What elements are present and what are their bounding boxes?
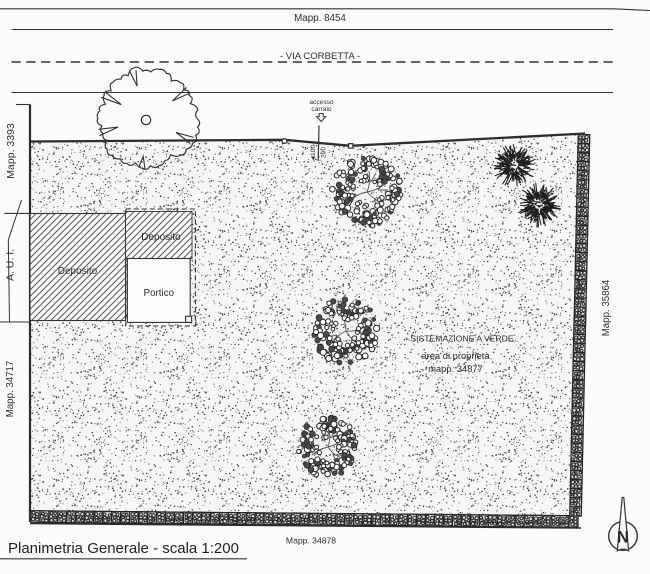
svg-text:carraio: carraio — [311, 106, 331, 113]
svg-text:Deposito: Deposito — [141, 232, 181, 243]
svg-text:Portico: Portico — [144, 288, 175, 299]
svg-text:200: 200 — [321, 147, 328, 158]
svg-text:SISTEMAZIONE A VERDE: SISTEMAZIONE A VERDE — [410, 334, 513, 344]
svg-text:Mapp. 34878: Mapp. 34878 — [286, 536, 336, 546]
svg-text:area di proprietà: area di proprietà — [421, 350, 490, 361]
svg-text:Planimetria Generale - scala 1: Planimetria Generale - scala 1:200 — [8, 540, 239, 557]
svg-text:Deposito: Deposito — [58, 266, 98, 277]
svg-text:N: N — [617, 529, 629, 547]
svg-text:A. U. I.: A. U. I. — [5, 249, 17, 281]
svg-text:Mapp. 35864: Mapp. 35864 — [601, 279, 612, 336]
svg-text:mapp. 34877: mapp. 34877 — [428, 363, 483, 374]
svg-text:- VIA CORBETTA -: - VIA CORBETTA - — [280, 51, 360, 62]
svg-text:100: 100 — [310, 145, 317, 156]
svg-text:Mapp. 8454: Mapp. 8454 — [294, 13, 346, 24]
svg-text:Mapp. 34717: Mapp. 34717 — [5, 361, 16, 418]
svg-text:accesso: accesso — [309, 99, 334, 106]
svg-text:Mapp. 3393: Mapp. 3393 — [5, 123, 17, 179]
